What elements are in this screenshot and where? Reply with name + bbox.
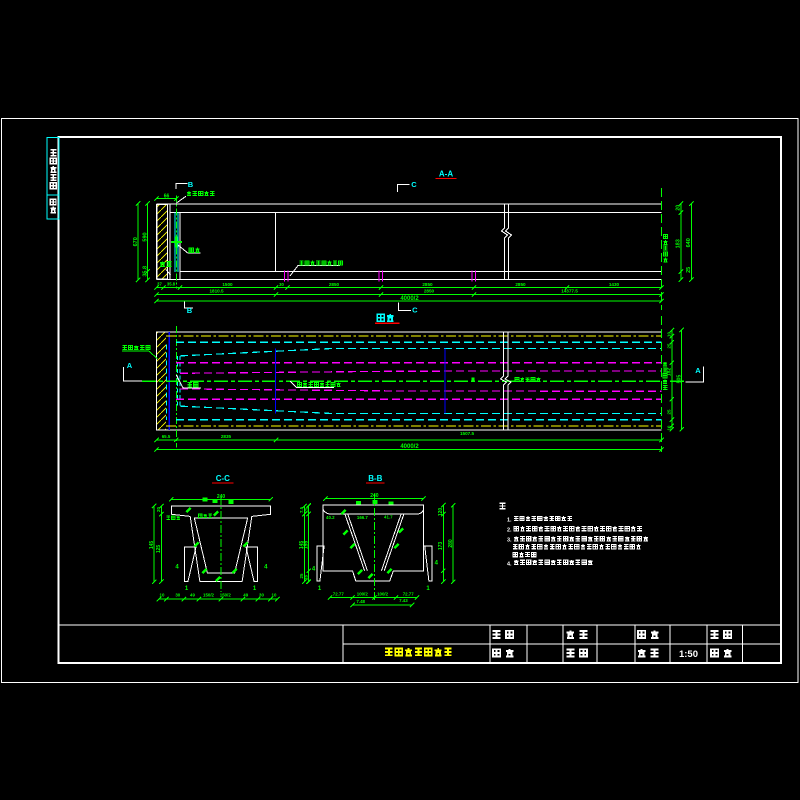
svg-text:125: 125: [156, 545, 162, 554]
svg-text:40.2: 40.2: [326, 515, 335, 520]
svg-text:4.: 4.: [507, 561, 512, 567]
svg-text:66: 66: [164, 193, 170, 199]
svg-text:183: 183: [675, 239, 681, 248]
svg-text:30: 30: [279, 282, 284, 287]
svg-text:A-A: A-A: [439, 170, 453, 179]
svg-text:7.43: 7.43: [399, 598, 408, 603]
svg-text:182: 182: [667, 368, 673, 377]
svg-text:10: 10: [667, 332, 672, 337]
svg-text:1430: 1430: [609, 282, 620, 287]
svg-text:10: 10: [667, 425, 672, 430]
svg-text:14377.5: 14377.5: [561, 289, 578, 294]
svg-text:25: 25: [303, 507, 308, 512]
svg-text:10: 10: [272, 593, 277, 598]
svg-text:155: 155: [303, 541, 309, 550]
svg-text:1:50: 1:50: [679, 649, 698, 660]
svg-text:3.: 3.: [507, 538, 512, 544]
svg-text:25: 25: [667, 409, 672, 414]
svg-text:120: 120: [438, 508, 444, 517]
svg-text:150/2: 150/2: [220, 593, 232, 598]
svg-text:41.7: 41.7: [384, 515, 393, 520]
svg-text:B-B: B-B: [368, 474, 382, 483]
svg-text:30: 30: [175, 593, 180, 598]
svg-text:2835: 2835: [221, 434, 232, 439]
svg-text:35.8: 35.8: [142, 266, 148, 277]
svg-text:10: 10: [160, 593, 165, 598]
svg-text:145: 145: [149, 541, 155, 550]
svg-text:505: 505: [676, 375, 682, 384]
svg-text:16: 16: [303, 575, 308, 580]
svg-text:A: A: [127, 361, 133, 370]
svg-text:72.77: 72.77: [333, 592, 345, 597]
svg-text:7.48: 7.48: [356, 599, 365, 604]
svg-text:65.5: 65.5: [162, 434, 171, 439]
svg-text:670: 670: [133, 237, 139, 246]
svg-text:4000/2: 4000/2: [400, 444, 419, 450]
svg-text:30: 30: [259, 593, 264, 598]
svg-text:100/2: 100/2: [377, 592, 389, 597]
svg-text:B: B: [187, 306, 193, 315]
svg-text:C-C: C-C: [216, 474, 230, 483]
svg-text:2850: 2850: [329, 282, 340, 287]
svg-text:1507.5: 1507.5: [460, 431, 474, 436]
svg-text:35.8: 35.8: [167, 282, 176, 287]
svg-text:A: A: [695, 366, 701, 375]
svg-text:1.: 1.: [507, 517, 512, 523]
svg-text:173: 173: [438, 542, 444, 551]
svg-text:49: 49: [190, 593, 195, 598]
svg-text:280: 280: [448, 539, 454, 548]
svg-text:37: 37: [157, 282, 162, 287]
svg-text:1500: 1500: [222, 282, 233, 287]
svg-text:25: 25: [667, 343, 672, 348]
svg-text:100/2: 100/2: [357, 592, 369, 597]
svg-text:25: 25: [686, 267, 692, 273]
svg-text:20: 20: [675, 205, 681, 211]
svg-text:B: B: [188, 180, 194, 189]
svg-text:20: 20: [156, 507, 161, 512]
svg-text:C: C: [412, 306, 418, 315]
svg-text:2850: 2850: [422, 282, 433, 287]
svg-text:72.77: 72.77: [403, 592, 415, 597]
svg-text:166.7: 166.7: [357, 515, 369, 520]
svg-text:2850: 2850: [424, 288, 435, 293]
svg-text:590: 590: [142, 232, 148, 241]
svg-text:1810.5: 1810.5: [209, 289, 223, 294]
svg-text:640: 640: [686, 238, 692, 247]
svg-text:150/2: 150/2: [203, 593, 215, 598]
svg-text:49: 49: [243, 593, 248, 598]
svg-text:4000/2: 4000/2: [400, 296, 419, 302]
svg-text:2850: 2850: [515, 282, 526, 287]
svg-text:2.: 2.: [507, 528, 512, 534]
svg-text:C: C: [411, 180, 417, 189]
